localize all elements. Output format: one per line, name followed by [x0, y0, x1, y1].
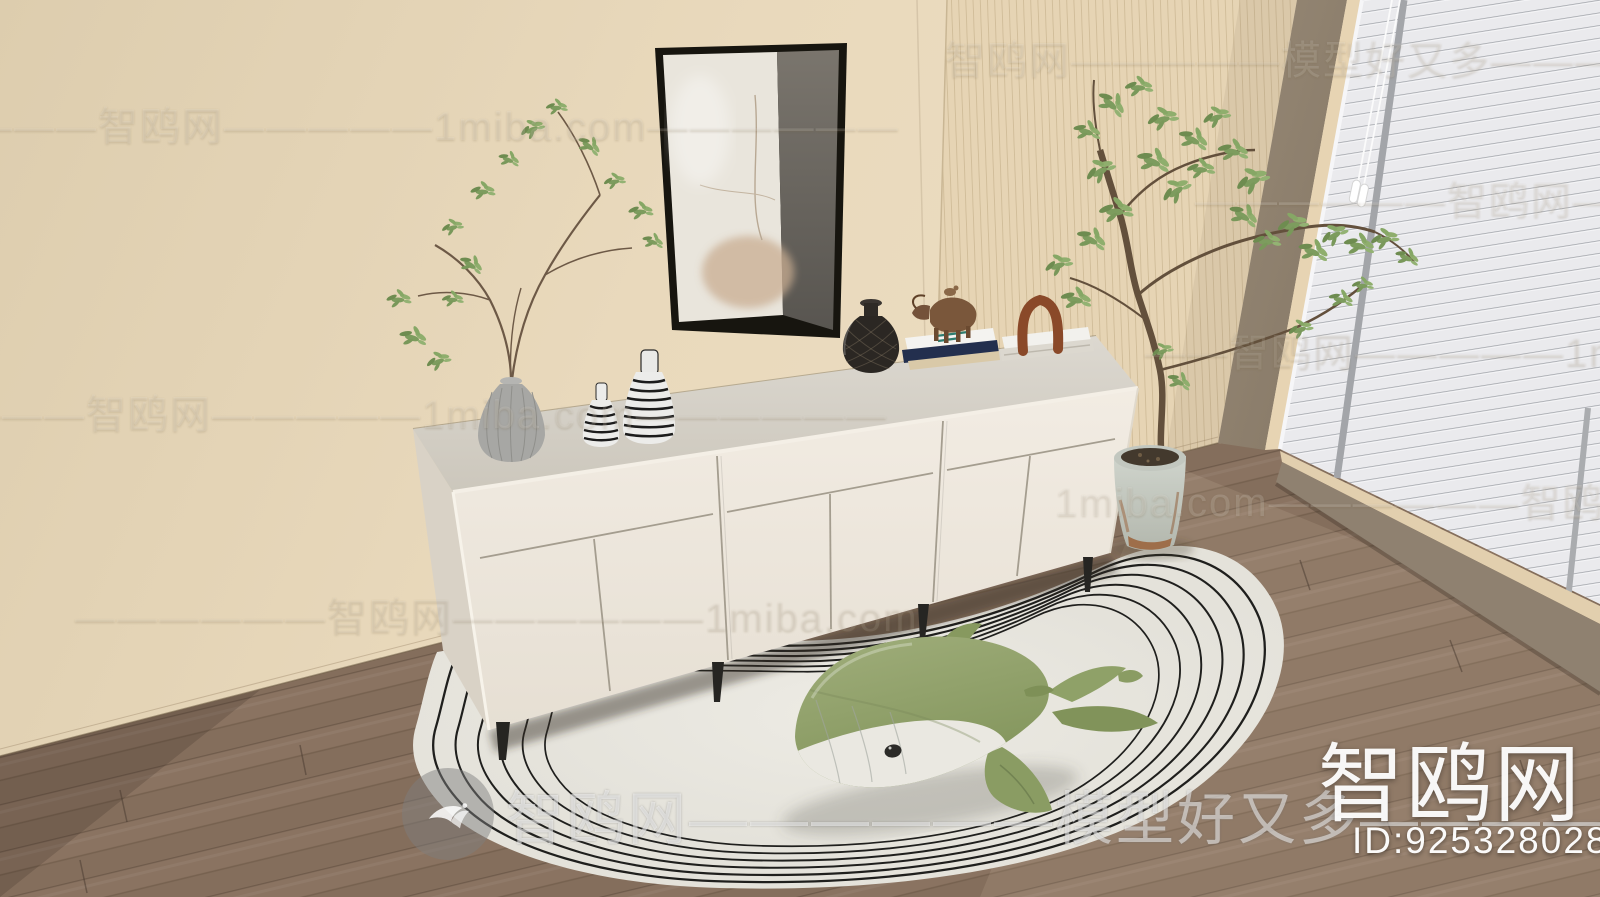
interior-render-image: 智鸥网—————模型好又多—————— ————智鸥网—————1miba.co… [0, 0, 1600, 897]
room-scene-graphic [0, 0, 1600, 897]
abstract-painting [655, 43, 847, 338]
plant-pot [1114, 445, 1186, 550]
